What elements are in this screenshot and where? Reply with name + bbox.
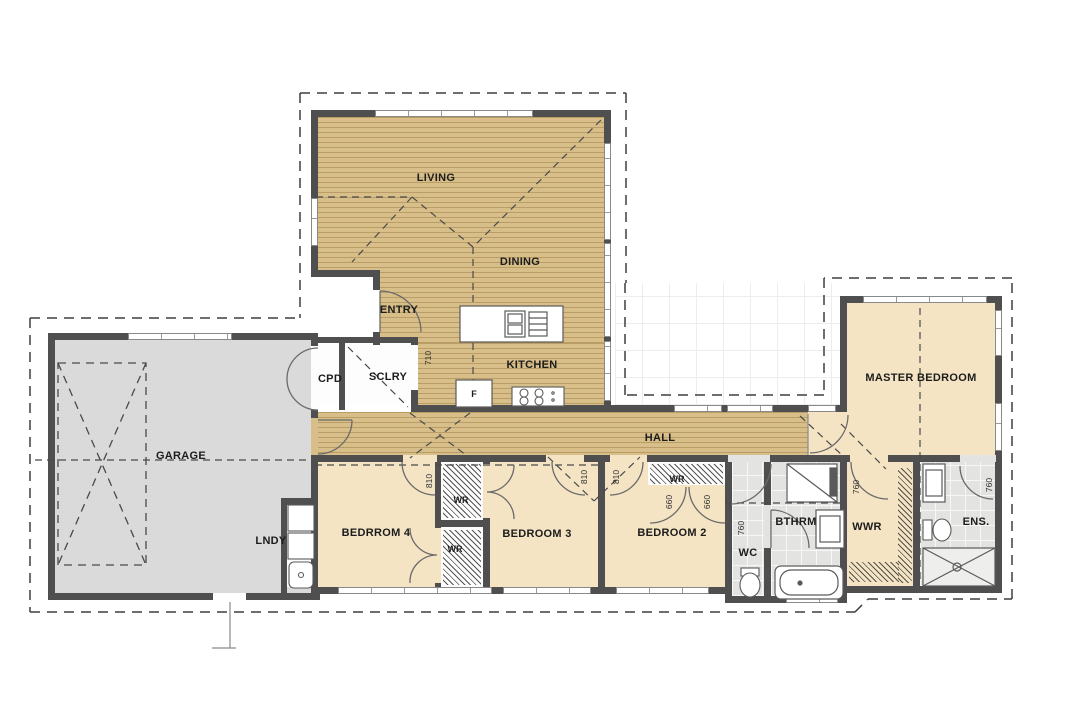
wall — [725, 462, 732, 603]
room-lndy-floor — [287, 505, 311, 587]
room-bed4-floor — [318, 462, 435, 587]
dimension-label: 660 — [664, 495, 674, 509]
room-label-bthrm: BTHRM — [775, 516, 816, 528]
window — [674, 405, 722, 412]
wall — [598, 462, 605, 590]
dimension-label: 760 — [851, 480, 861, 494]
door-opening — [850, 455, 888, 462]
wall — [435, 520, 490, 527]
door-opening — [610, 455, 647, 462]
room-hall-floor — [318, 412, 808, 455]
wardrobe-rail — [849, 562, 899, 582]
door-opening — [411, 345, 418, 390]
wall — [48, 333, 55, 600]
window — [995, 403, 1002, 451]
door-opening — [960, 455, 996, 462]
door-opening — [483, 464, 490, 518]
room-label-bed4: BEDRROM 4 — [342, 527, 411, 539]
window — [604, 341, 611, 401]
wall — [840, 462, 847, 603]
dimension-label: 760 — [736, 521, 746, 535]
dimension-label: 710 — [423, 351, 433, 365]
window — [338, 587, 492, 594]
room-label-living: LIVING — [417, 172, 455, 184]
wardrobe-rail — [443, 530, 481, 585]
wall — [840, 296, 847, 412]
room-label-bed3: BEDROOM 3 — [502, 528, 571, 540]
window — [616, 587, 709, 594]
door-opening — [213, 593, 246, 600]
door-opening — [728, 455, 770, 462]
wall — [48, 593, 320, 600]
wall — [313, 337, 418, 343]
room-label-kitchen: KITCHEN — [507, 359, 558, 371]
wall — [840, 586, 1002, 593]
room-label-sclry: SCLRY — [369, 371, 407, 383]
master-lobby-floor — [808, 412, 845, 455]
room-label-entry: ENTRY — [380, 304, 418, 316]
window — [604, 243, 611, 337]
window — [128, 333, 232, 340]
wardrobe-rail — [443, 464, 481, 518]
door-opening — [435, 528, 441, 583]
room-label-wc: WC — [739, 547, 758, 559]
door-opening — [403, 455, 437, 462]
window — [863, 296, 987, 303]
window — [604, 143, 611, 240]
door-opening — [546, 455, 584, 462]
window — [375, 110, 533, 117]
room-living-floor — [318, 117, 604, 277]
window — [995, 310, 1002, 356]
room-label-dining: DINING — [500, 256, 540, 268]
room-label-master: MASTER BEDROOM — [865, 372, 976, 384]
window — [808, 405, 836, 412]
wall — [311, 270, 380, 277]
floor-plan: LIVING DINING ENTRY CPD SCLRY KITCHEN F … — [0, 0, 1080, 720]
dimension-label: 810 — [424, 474, 434, 488]
dimension-label: 810 — [611, 470, 621, 484]
room-label-lndy: LNDY — [255, 535, 286, 547]
dimension-label: 660 — [702, 495, 712, 509]
door-opening — [311, 418, 318, 455]
wall — [311, 110, 318, 277]
room-label-bed2: BEDROOM 2 — [637, 527, 706, 539]
room-label-hall: HALL — [645, 432, 676, 444]
room-label-ens: ENS. — [963, 516, 990, 528]
room-garage-floor — [55, 340, 311, 593]
room-label-garage: GARAGE — [156, 450, 206, 462]
wardrobe-rail — [650, 464, 723, 484]
window — [503, 587, 591, 594]
wardrobe-label: WR — [454, 495, 469, 505]
dimension-label: 760 — [984, 478, 994, 492]
room-kitchen-floor — [418, 343, 604, 405]
door-opening — [311, 346, 318, 410]
wardrobe-label: WR — [670, 474, 685, 484]
dimension-label: 810 — [579, 470, 589, 484]
window — [786, 596, 838, 603]
wall — [411, 405, 611, 412]
room-label-cpd: CPD — [318, 373, 342, 385]
door-opening — [764, 505, 771, 548]
wall — [913, 462, 920, 593]
patio-floor — [615, 283, 842, 405]
room-label-wwr: WWR — [852, 521, 882, 533]
fridge-label: F — [471, 389, 477, 399]
wardrobe-rail — [898, 468, 912, 583]
room-bthrm-floor — [771, 462, 840, 596]
wardrobe-label: WR — [448, 544, 463, 554]
window — [311, 198, 318, 246]
window — [727, 405, 773, 412]
